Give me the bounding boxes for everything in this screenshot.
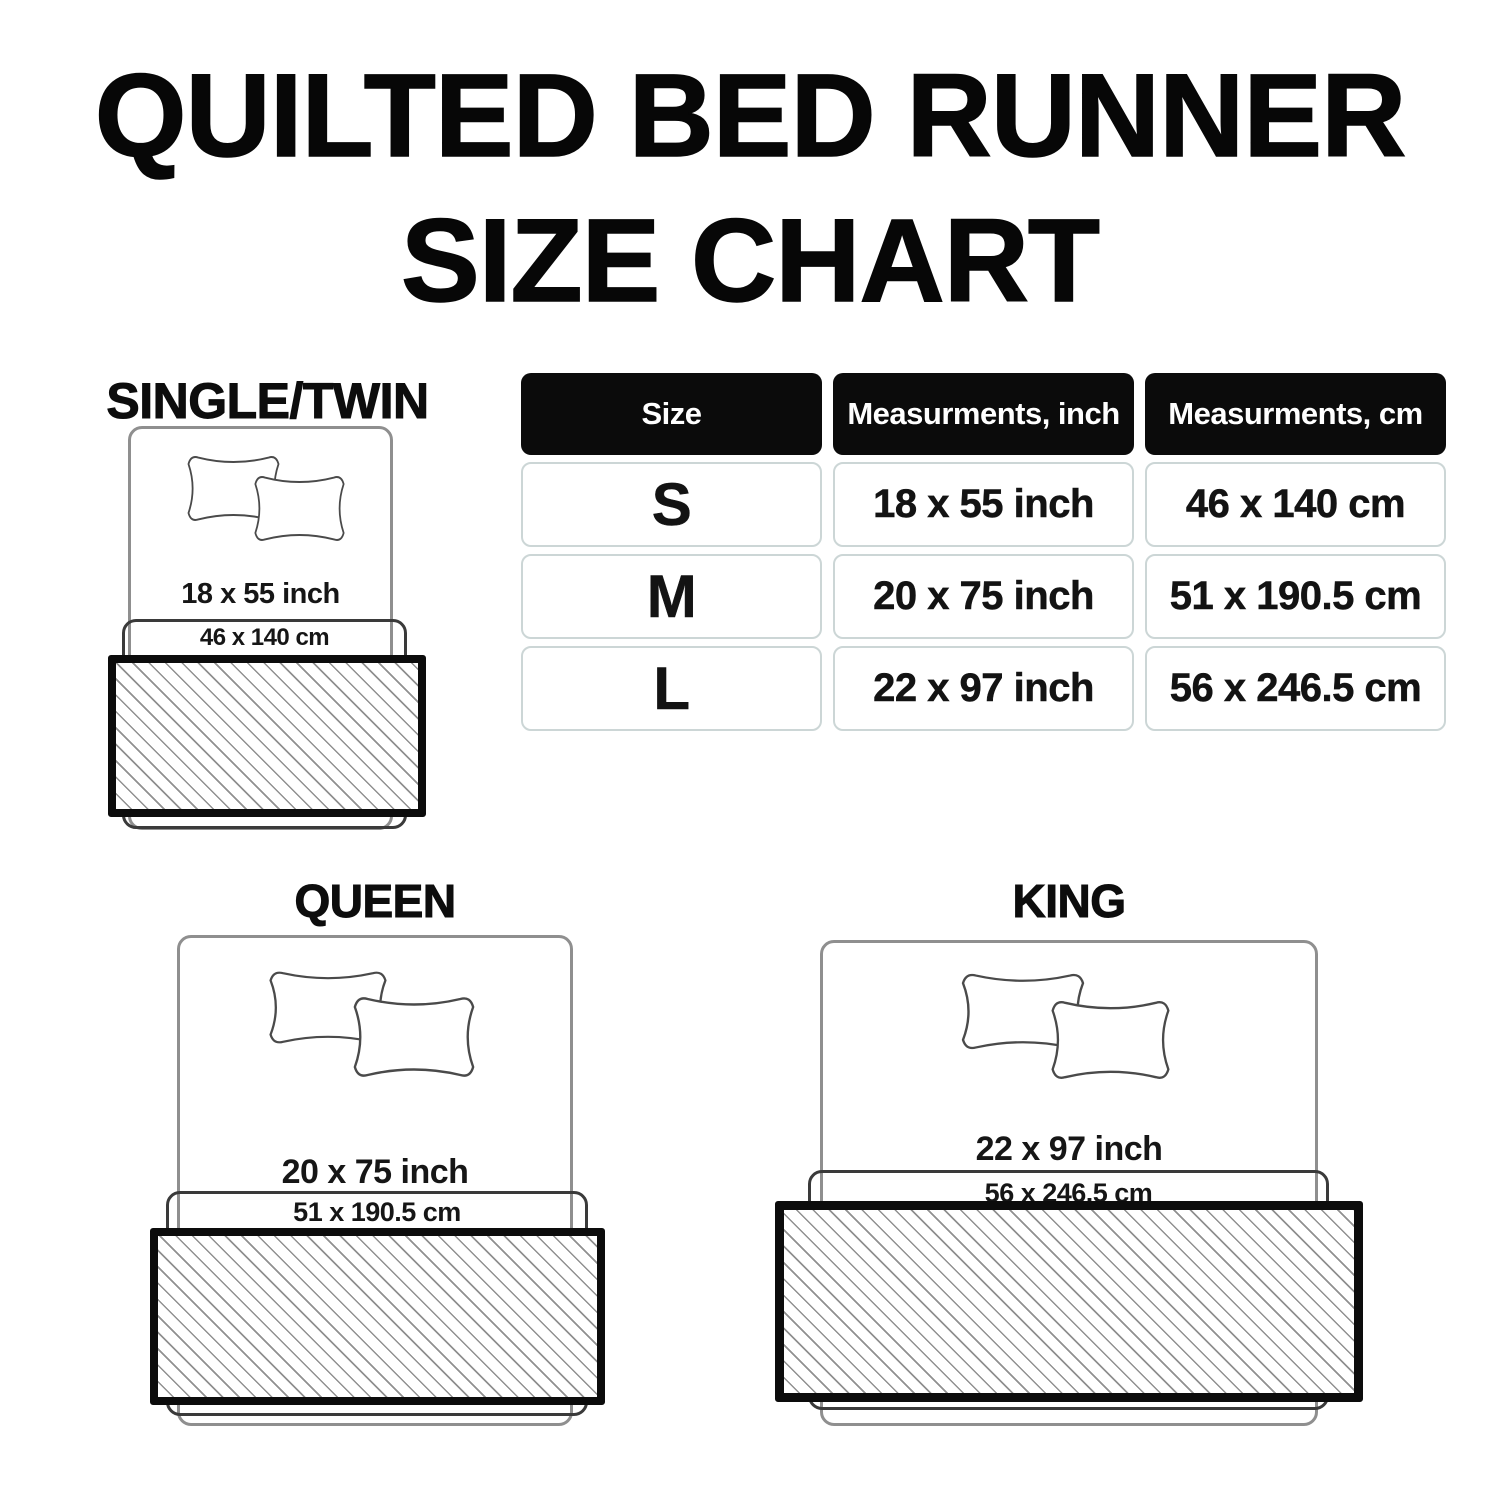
table-header-inch: Measurments, inch (833, 373, 1134, 455)
pillows-illustration (180, 938, 576, 1138)
pillows-illustration (823, 943, 1321, 1143)
table-cell-cm-s: 46 x 140 cm (1145, 462, 1446, 547)
table-cell-inch-s: 18 x 55 inch (833, 462, 1134, 547)
diagram-label-queen: QUEEN (177, 874, 573, 928)
diagram-queen: QUEEN 20 x 75 inch 51 x 190.5 cm (130, 868, 620, 1443)
title-line-2: SIZE CHART (0, 189, 1500, 334)
pillow-front-icon (255, 477, 343, 540)
table-cell-size-m: M (521, 554, 822, 639)
runner-size-cm-queen: 51 x 190.5 cm (166, 1197, 588, 1228)
diagram-label-king: KING (820, 874, 1318, 928)
bed-runner-queen (150, 1228, 605, 1405)
table-cell-cm-m: 51 x 190.5 cm (1145, 554, 1446, 639)
table-cell-inch-m: 20 x 75 inch (833, 554, 1134, 639)
runner-size-cm-single: 46 x 140 cm (122, 624, 407, 652)
bed-runner-king (775, 1201, 1363, 1402)
page-title: QUILTED BED RUNNER SIZE CHART (0, 44, 1500, 334)
pillow-front-icon (355, 998, 473, 1075)
table-cell-size-s: S (521, 462, 822, 547)
size-table: Size Measurments, inch Measurments, cm S… (521, 373, 1446, 731)
title-line-1: QUILTED BED RUNNER (0, 44, 1500, 189)
runner-size-inch-single: 18 x 55 inch (128, 578, 393, 611)
runner-size-inch-king: 22 x 97 inch (820, 1130, 1318, 1169)
diagram-king: KING 22 x 97 inch 56 x 246.5 cm (760, 868, 1380, 1443)
pillows-illustration (131, 429, 396, 599)
table-cell-cm-l: 56 x 246.5 cm (1145, 646, 1446, 731)
table-cell-size-l: L (521, 646, 822, 731)
size-chart-infographic: QUILTED BED RUNNER SIZE CHART SINGLE/TWI… (0, 0, 1500, 1500)
runner-size-inch-queen: 20 x 75 inch (177, 1153, 573, 1192)
table-header-cm: Measurments, cm (1145, 373, 1446, 455)
diagram-label-single-twin: SINGLE/TWIN (90, 372, 445, 430)
pillow-front-icon (1053, 1002, 1169, 1078)
diagram-single-twin: SINGLE/TWIN 18 x 55 inch 46 x 140 cm (90, 372, 445, 850)
bed-runner-single (108, 655, 426, 817)
table-cell-inch-l: 22 x 97 inch (833, 646, 1134, 731)
table-header-size: Size (521, 373, 822, 455)
